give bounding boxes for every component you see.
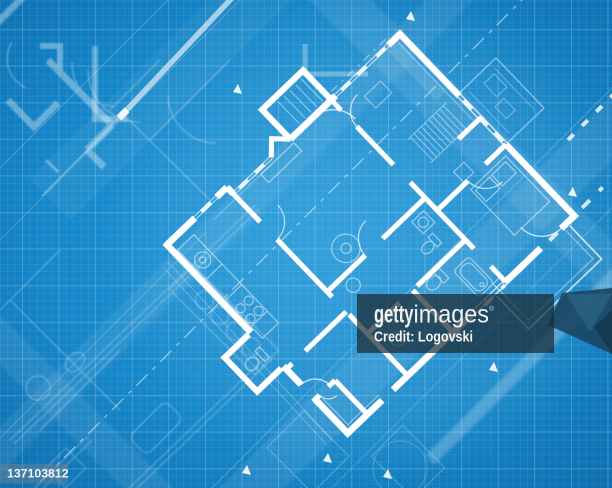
svg-text:137103812: 137103812 — [7, 467, 69, 481]
svg-text:®: ® — [489, 305, 495, 313]
svg-text:gettyimages: gettyimages — [374, 301, 489, 329]
svg-text:Credit: Logovski: Credit: Logovski — [374, 330, 473, 346]
